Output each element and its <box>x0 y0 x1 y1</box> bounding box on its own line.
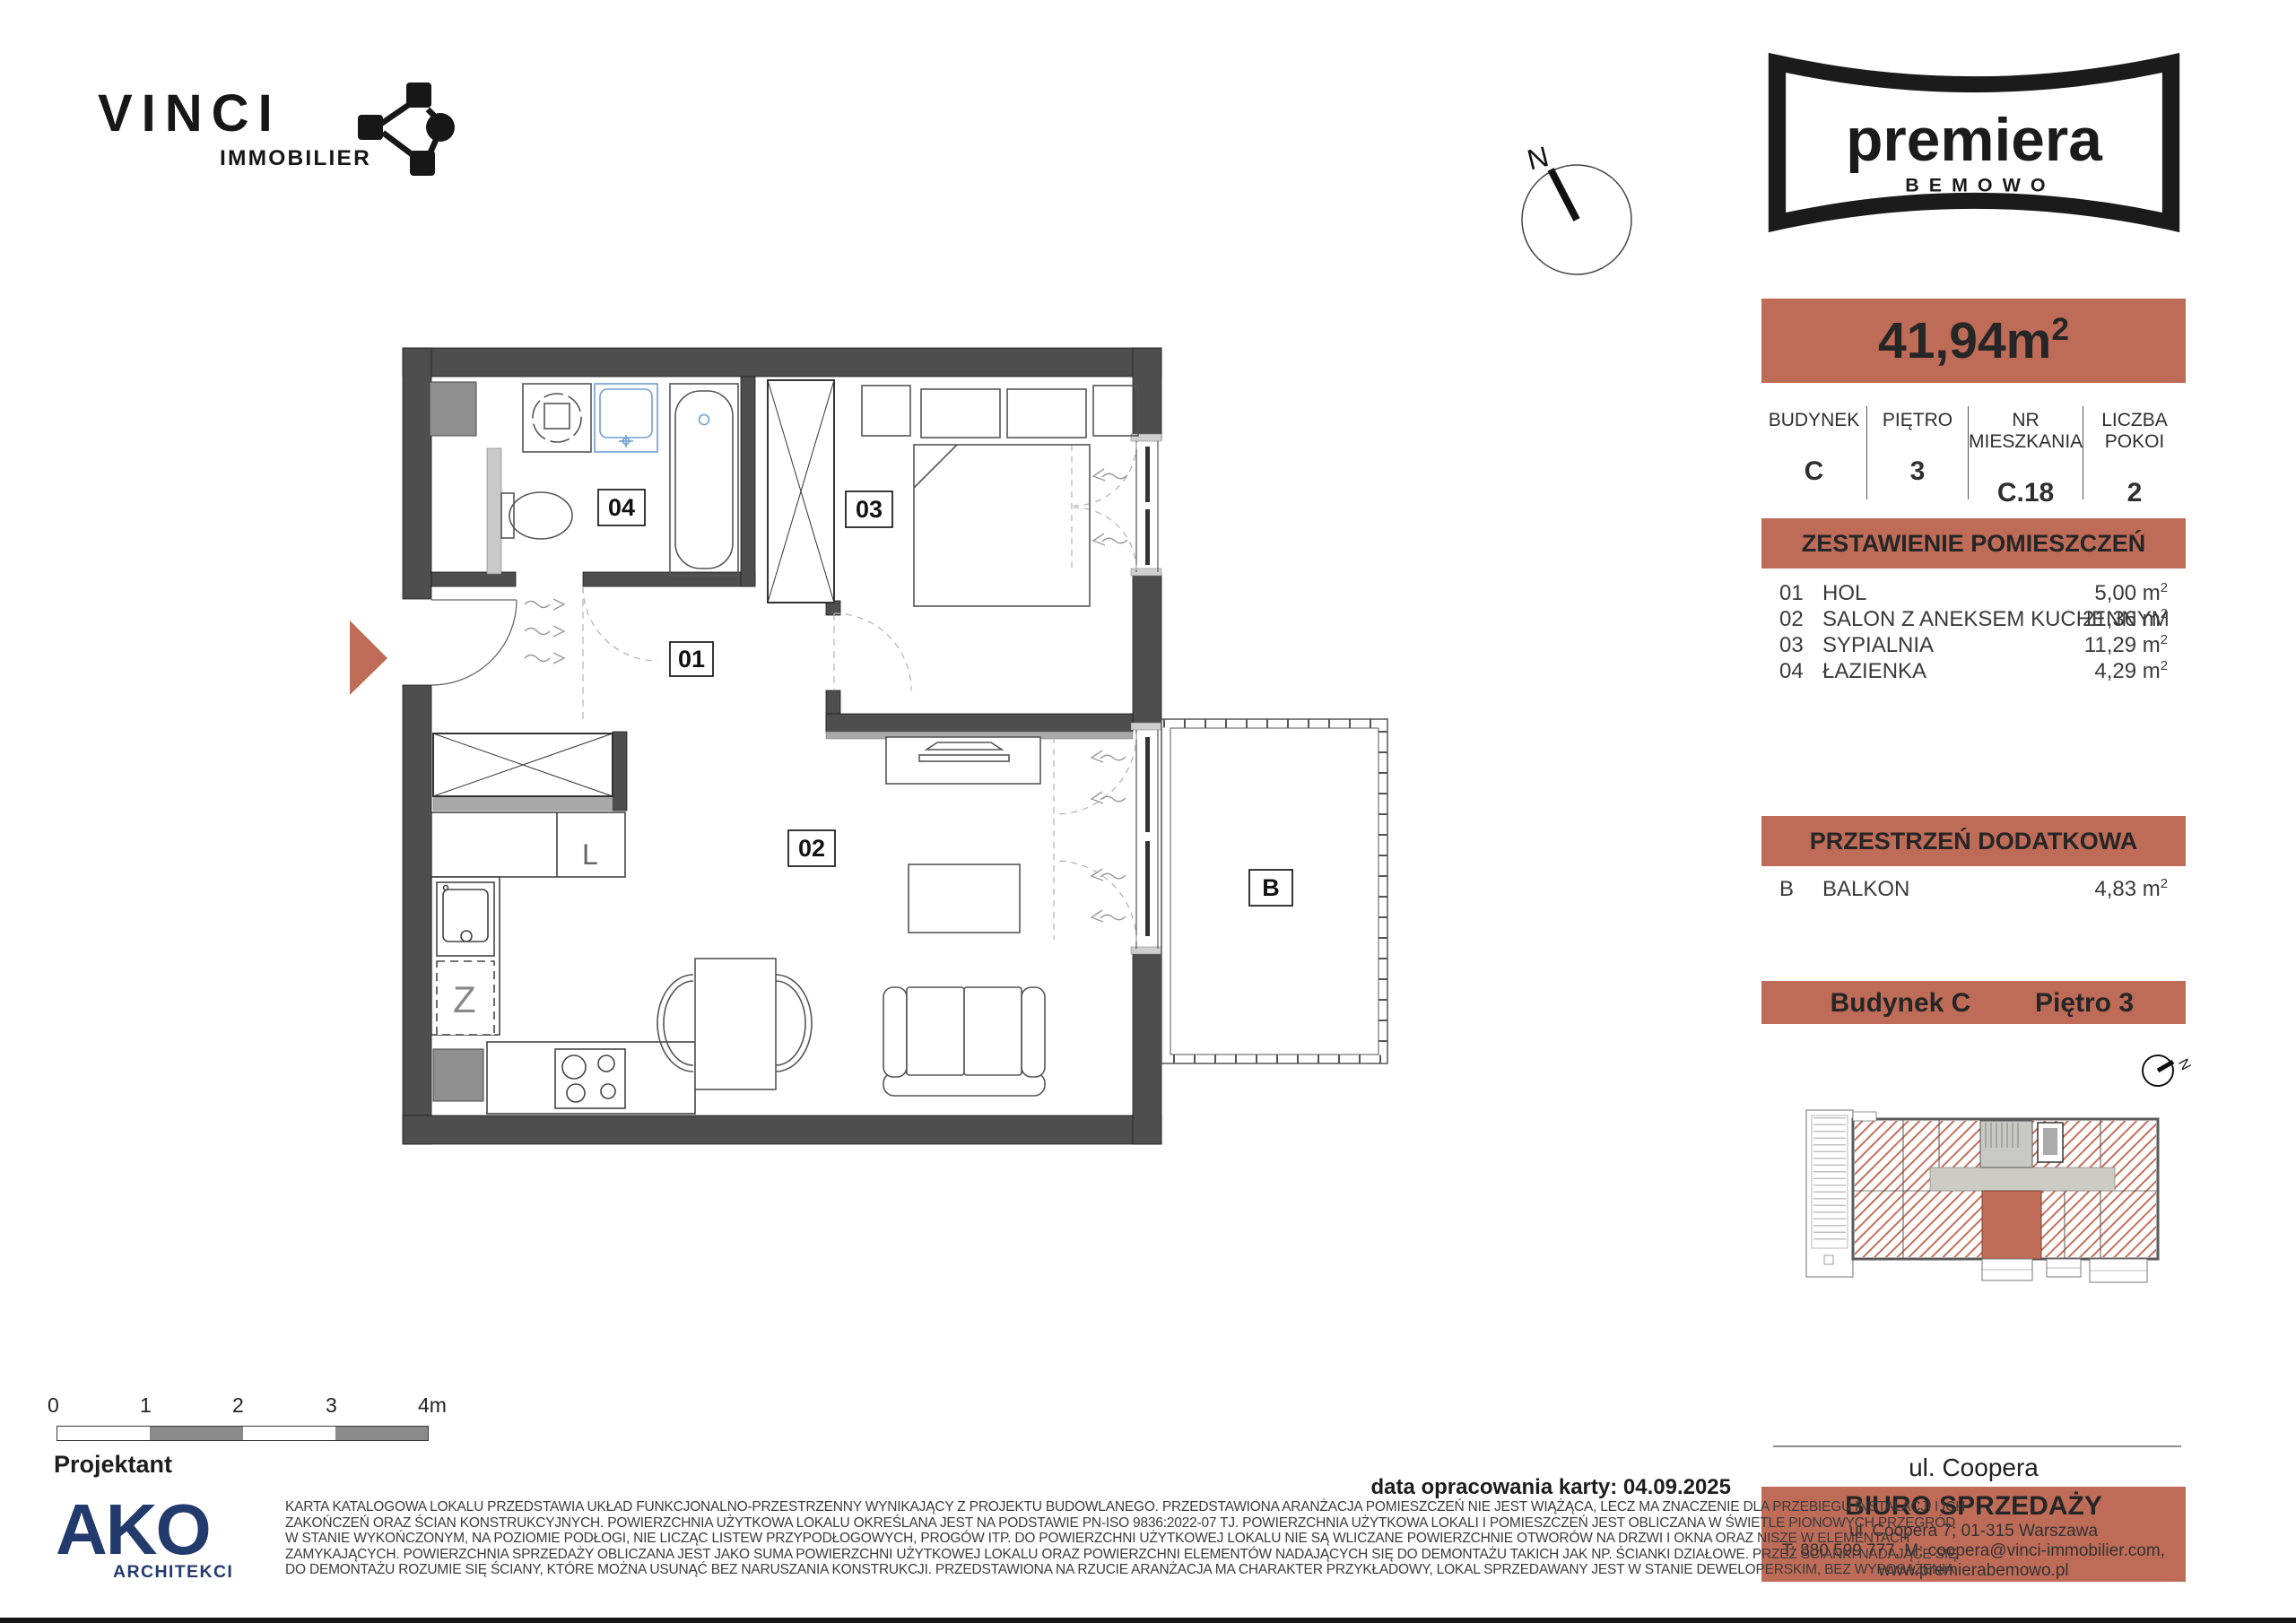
bed-icon <box>914 445 1090 606</box>
north-label: N <box>1524 143 1552 176</box>
extra-number: B <box>1779 877 1794 902</box>
unit-info-table: BUDYNEK C PIĘTRO 3 NR MIESZKANIA C.18 LI… <box>1761 406 2186 499</box>
bath-sink-icon <box>595 384 657 452</box>
key-plan-highlighted-unit <box>1982 1191 2041 1259</box>
extra-area: 4,83 m2 <box>2094 877 2168 902</box>
extra-name: BALKON <box>1822 877 1909 902</box>
entrance-door <box>431 600 517 685</box>
room-label-balcony: B <box>1262 874 1280 901</box>
key-plan-stairs <box>1980 1121 2032 1167</box>
bathtub-icon <box>670 384 738 576</box>
scale-segment <box>335 1427 428 1440</box>
ako-logo-subtext: ARCHITEKCI <box>113 1562 233 1583</box>
extra-row: B BALKON 4,83 m2 <box>1761 877 2186 903</box>
unit-area-value: 41,94m <box>1878 312 2051 369</box>
nightstand-icon <box>1093 386 1138 436</box>
room-name: SYPIALNIA <box>1822 633 1934 658</box>
rooms-table-title: ZESTAWIENIE POMIESZCZEŃ <box>1802 530 2146 558</box>
scale-label: 3 <box>326 1393 344 1418</box>
bedroom-furniture <box>862 386 1138 606</box>
pillow-icon <box>921 389 1000 438</box>
room-row: 04 ŁAZIENKA 4,29 m2 <box>1761 659 2186 685</box>
room-number: 02 <box>1779 607 1804 632</box>
unit-area: 41,94m2 <box>1878 311 2069 370</box>
disclaimer-line: ZAMYKAJĄCYCH. POWIERZCHNIA SPRZEDAŻY OBL… <box>285 1547 1743 1563</box>
pillow-icon <box>1007 389 1086 438</box>
key-plan-north-label: N <box>2175 1056 2193 1072</box>
catalog-card: VINCI IMMOBILIER N premiera BEMOWO 41,94… <box>0 0 2296 1623</box>
street-divider <box>1773 1445 2181 1447</box>
key-plan-corridor <box>1930 1167 2115 1191</box>
vinci-logo-text: VINCI <box>98 84 282 143</box>
room-row: 02 SALON Z ANEKSEM KUCHENNYM 21,36 m2 <box>1761 607 2186 633</box>
room-label-hall: 01 <box>678 646 705 673</box>
disclaimer-line: KARTA KATALOGOWA LOKALU PRZEDSTAWIA UKŁA… <box>285 1499 1743 1515</box>
card-date: data opracowania karty: 04.09.2025 <box>1256 1475 1731 1500</box>
room-area: 11,29 m2 <box>2084 633 2168 658</box>
info-cell-floor: PIĘTRO 3 <box>1866 406 1968 499</box>
footer-rule <box>0 1618 2296 1623</box>
room-label-bath: 04 <box>608 494 635 521</box>
info-header: LICZBA POKOI <box>2083 410 2186 453</box>
room-row: 03 SYPIALNIA 11,29 m2 <box>1761 633 2186 659</box>
ako-logo: AKO <box>56 1488 210 1571</box>
scale-segment <box>243 1427 335 1440</box>
vinci-logo: VINCI IMMOBILIER <box>85 72 462 188</box>
premiera-bemowo-logo: premiera BEMOWO <box>1763 47 2185 239</box>
scale-bar <box>57 1426 429 1441</box>
room-number: 04 <box>1779 659 1804 684</box>
disclaimer-line: W STANIE WYKOŃCZONYM, NA POZIOMIE PODŁOG… <box>285 1531 1743 1547</box>
vinci-plus-icon <box>358 82 455 176</box>
location-building: Budynek C <box>1797 988 2004 1019</box>
room-area: 5,00 m2 <box>2094 581 2168 606</box>
info-header: PIĘTRO <box>1867 410 1968 431</box>
bedroom-door <box>834 613 911 690</box>
area-header-bar: 41,94m2 <box>1761 299 2186 383</box>
key-plan-building <box>1853 1112 2158 1259</box>
bathroom-fixtures <box>501 384 738 576</box>
key-plan-left-wing <box>1806 1110 1853 1277</box>
north-compass-icon: N <box>1514 143 1657 287</box>
info-cell-building: BUDYNEK C <box>1761 406 1866 499</box>
room-name: HOL <box>1822 581 1866 606</box>
location-floor: Piętro 3 <box>2013 988 2156 1019</box>
rooms-table-title-bar: ZESTAWIENIE POMIESZCZEŃ <box>1761 518 2186 568</box>
stove-icon <box>555 1049 625 1108</box>
living-furniture <box>883 737 1045 1096</box>
bedroom-window <box>1072 441 1158 572</box>
entrance-arrow-icon <box>350 619 387 697</box>
scale-label: 2 <box>232 1393 250 1418</box>
info-cell-apartment: NR MIESZKANIA C.18 <box>1968 406 2083 499</box>
floor-plan: L Z <box>350 334 1408 1159</box>
sofa-icon <box>883 987 1045 1096</box>
room-number: 01 <box>1779 581 1804 606</box>
location-bar: Budynek C Piętro 3 <box>1761 981 2186 1024</box>
disclaimer-line: DO DEMONTAŻU ROZUMIE SIĘ ŚCIANY, KTÓRE M… <box>285 1562 1743 1578</box>
scale-label: 1 <box>140 1393 158 1418</box>
scale-segment <box>57 1427 150 1440</box>
room-name: ŁAZIENKA <box>1822 659 1926 684</box>
room-area: 4,29 m2 <box>2094 659 2168 684</box>
kitchen-sink-icon <box>437 882 494 956</box>
shaft <box>430 382 476 436</box>
vinci-logo-subtext: IMMOBILIER <box>220 146 371 170</box>
hall-wardrobe-icon <box>433 733 613 796</box>
extra-space-title-bar: PRZESTRZEŃ DODATKOWA <box>1761 816 2186 866</box>
extra-space-title: PRZESTRZEŃ DODATKOWA <box>1810 828 2138 855</box>
shaft <box>433 1049 483 1101</box>
unit-area-sup: 2 <box>2051 312 2069 347</box>
building-key-plan <box>1805 1105 2190 1286</box>
table-icon <box>695 959 776 1089</box>
scale-segment <box>150 1427 242 1440</box>
room-area: 21,36 m2 <box>2083 607 2168 632</box>
info-value: 3 <box>1867 456 1968 487</box>
room-number: 03 <box>1779 633 1804 658</box>
dishwasher-symbol: Z <box>453 978 476 1020</box>
info-value: C.18 <box>1969 478 2083 508</box>
balcony-door <box>1054 730 1158 949</box>
tv-icon <box>926 742 1002 750</box>
street-name: ul. Coopera <box>1761 1454 2186 1482</box>
room-label-bedroom: 03 <box>856 496 883 523</box>
logo-name: premiera <box>1846 107 2103 174</box>
nightstand-icon <box>862 386 910 436</box>
info-header: BUDYNEK <box>1761 410 1866 431</box>
scale-labels: 0 1 2 3 4m <box>39 1393 487 1415</box>
scale-label: 4m <box>418 1393 457 1418</box>
toilet-icon <box>501 492 572 539</box>
scale-label: 0 <box>48 1393 65 1418</box>
info-header: NR MIESZKANIA <box>1969 410 2083 453</box>
info-value: 2 <box>2083 478 2186 508</box>
fridge-symbol: L <box>582 838 598 871</box>
room-row: 01 HOL 5,00 m2 <box>1761 581 2186 607</box>
key-plan-balconies <box>1982 1259 2147 1282</box>
logo-subname: BEMOWO <box>1905 175 2055 196</box>
bathroom-door <box>583 586 657 661</box>
coffee-table-icon <box>909 864 1020 933</box>
key-plan-compass-icon: N <box>2136 1047 2208 1101</box>
bedroom-wardrobe-icon <box>768 380 834 603</box>
info-cell-rooms: LICZBA POKOI 2 <box>2083 406 2186 499</box>
disclaimer-line: ZAKOŃCZEŃ ORAZ ŚCIAN KONSTRUKCYJNYCH. PO… <box>285 1515 1743 1532</box>
info-value: C <box>1761 456 1866 487</box>
room-label-living: 02 <box>798 835 825 862</box>
designer-label: Projektant <box>54 1451 172 1479</box>
